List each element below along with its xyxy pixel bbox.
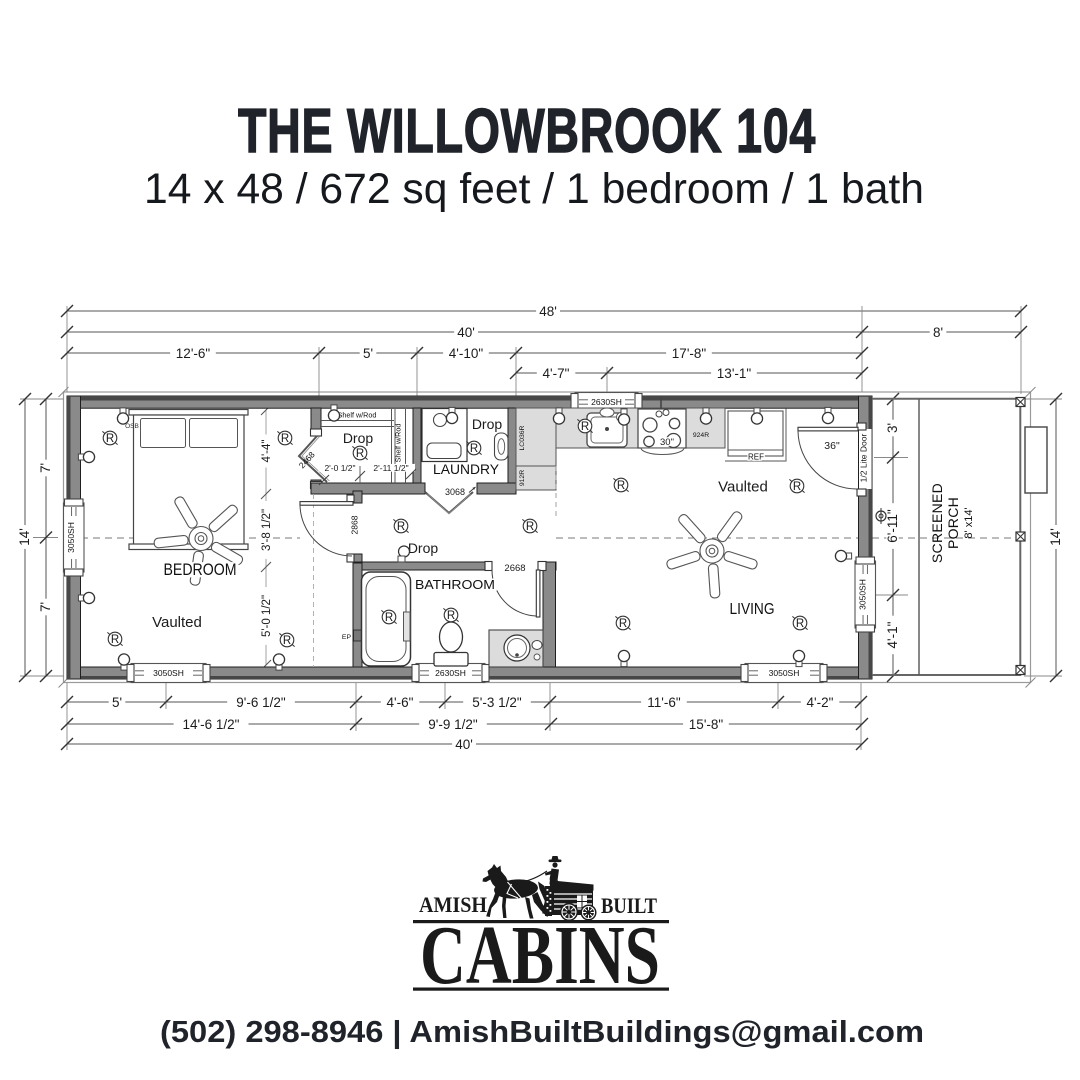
svg-text:2868: 2868 xyxy=(350,515,360,534)
svg-text:R: R xyxy=(619,618,627,630)
svg-text:LIVING: LIVING xyxy=(730,601,775,618)
svg-text:Drop: Drop xyxy=(408,540,439,556)
svg-text:13'-1": 13'-1" xyxy=(717,366,752,381)
svg-text:R: R xyxy=(283,635,291,647)
svg-text:4'-10": 4'-10" xyxy=(449,346,484,361)
svg-text:4'-1": 4'-1" xyxy=(885,621,900,648)
svg-text:R: R xyxy=(617,480,625,492)
svg-text:36": 36" xyxy=(824,440,840,452)
svg-text:5': 5' xyxy=(112,695,122,710)
svg-text:3'-8 1/2": 3'-8 1/2" xyxy=(261,509,273,551)
svg-text:Drop: Drop xyxy=(343,430,374,446)
svg-text:5': 5' xyxy=(363,346,373,361)
svg-text:(502) 298-8946 | AmishBuiltBui: (502) 298-8946 | AmishBuiltBuildings@gma… xyxy=(160,1014,924,1049)
svg-text:Vaulted: Vaulted xyxy=(718,479,768,496)
svg-text:4'-2": 4'-2" xyxy=(807,695,834,710)
svg-text:5'-0 1/2": 5'-0 1/2" xyxy=(261,595,273,637)
svg-text:3050SH: 3050SH xyxy=(66,522,76,553)
svg-text:Shelf w/Rod: Shelf w/Rod xyxy=(394,424,403,463)
svg-text:14': 14' xyxy=(17,528,32,546)
svg-text:912R: 912R xyxy=(519,470,526,486)
svg-text:1/2 Lite Door: 1/2 Lite Door xyxy=(859,433,869,482)
svg-text:R: R xyxy=(397,521,405,533)
svg-text:48': 48' xyxy=(539,304,557,319)
svg-text:BATHROOM: BATHROOM xyxy=(415,577,495,592)
svg-text:5'-3 1/2": 5'-3 1/2" xyxy=(472,695,522,710)
svg-text:3050SH: 3050SH xyxy=(769,668,800,678)
svg-text:R: R xyxy=(526,521,534,533)
svg-text:3': 3' xyxy=(885,423,900,433)
svg-text:REF: REF xyxy=(748,453,764,462)
svg-text:17'-8": 17'-8" xyxy=(672,346,707,361)
svg-text:6'-11": 6'-11" xyxy=(885,509,900,543)
svg-text:BEDROOM: BEDROOM xyxy=(164,561,237,579)
svg-text:R: R xyxy=(470,443,478,455)
svg-text:PORCH: PORCH xyxy=(945,497,961,549)
svg-text:7': 7' xyxy=(38,602,53,612)
svg-text:2'-0 1/2": 2'-0 1/2" xyxy=(324,463,355,473)
svg-text:R: R xyxy=(111,634,119,646)
svg-text:3050SH: 3050SH xyxy=(857,579,867,610)
svg-text:40': 40' xyxy=(457,325,475,340)
svg-text:2668: 2668 xyxy=(504,563,525,574)
svg-text:8' x14': 8' x14' xyxy=(963,507,975,538)
svg-text:14': 14' xyxy=(1048,528,1063,546)
svg-text:Shelf w/Rod: Shelf w/Rod xyxy=(338,411,377,420)
svg-text:14'-6 1/2": 14'-6 1/2" xyxy=(183,717,240,732)
svg-text:3068: 3068 xyxy=(445,487,465,497)
svg-text:R: R xyxy=(796,618,804,630)
svg-text:3050SH: 3050SH xyxy=(153,668,184,678)
svg-text:9'-6 1/2": 9'-6 1/2" xyxy=(236,695,286,710)
svg-text:924R: 924R xyxy=(693,432,709,439)
svg-text:R: R xyxy=(793,481,801,493)
svg-text:2630SH: 2630SH xyxy=(435,668,466,678)
svg-text:2630SH: 2630SH xyxy=(591,397,622,407)
svg-text:R: R xyxy=(106,433,114,445)
svg-text:R: R xyxy=(447,610,455,622)
svg-text:LC036R: LC036R xyxy=(519,425,526,450)
svg-text:2'-11 1/2": 2'-11 1/2" xyxy=(373,463,408,473)
svg-text:R: R xyxy=(281,433,289,445)
svg-text:OSB: OSB xyxy=(125,423,139,430)
svg-text:11'-6": 11'-6" xyxy=(647,695,681,710)
svg-text:14 x 48 / 672 sq feet / 1 bedr: 14 x 48 / 672 sq feet / 1 bedroom / 1 ba… xyxy=(144,165,924,213)
svg-text:Drop: Drop xyxy=(472,416,503,432)
svg-text:4'-4": 4'-4" xyxy=(261,440,273,463)
svg-text:R: R xyxy=(385,612,393,624)
svg-text:SCREENED: SCREENED xyxy=(929,483,945,563)
svg-text:40': 40' xyxy=(455,737,473,752)
svg-text:LAUNDRY: LAUNDRY xyxy=(433,462,499,477)
svg-text:7': 7' xyxy=(38,463,53,473)
svg-text:4'-6": 4'-6" xyxy=(387,695,414,710)
svg-text:9'-9 1/2": 9'-9 1/2" xyxy=(428,717,478,732)
svg-text:8': 8' xyxy=(933,325,943,340)
svg-text:Vaulted: Vaulted xyxy=(152,614,202,631)
svg-text:12'-6": 12'-6" xyxy=(176,346,211,361)
svg-text:R: R xyxy=(581,421,589,433)
svg-text:EP: EP xyxy=(342,634,352,641)
svg-text:R: R xyxy=(356,448,364,460)
svg-text:4'-7": 4'-7" xyxy=(543,366,570,381)
svg-text:15'-8": 15'-8" xyxy=(689,717,724,732)
svg-text:THE WILLOWBROOK 104: THE WILLOWBROOK 104 xyxy=(238,97,816,166)
svg-text:30": 30" xyxy=(660,437,674,448)
